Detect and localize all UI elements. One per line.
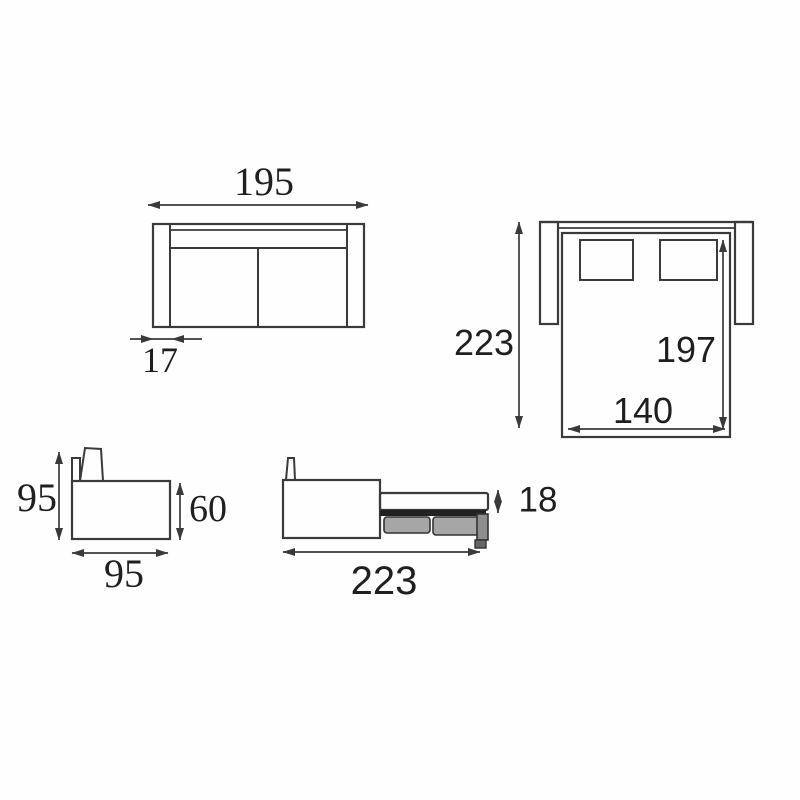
bed-side-leg-foot	[475, 540, 486, 548]
diagram-linework	[0, 0, 800, 800]
label-armrest-width: 17	[142, 342, 178, 378]
label-bed-width: 140	[613, 393, 673, 429]
sofa-bed-dimension-diagram: 195 17 223 197 140 95 60 95 18 223	[0, 0, 800, 800]
label-open-depth: 223	[351, 561, 418, 601]
bed-side-view	[283, 458, 498, 552]
label-mattress-thickness: 18	[519, 483, 558, 518]
label-sofa-overall-height: 95	[17, 478, 57, 518]
bed-side-folded-section-2	[433, 517, 480, 535]
bed-plan-pillow-right	[660, 240, 717, 280]
sofa-side-back-frame	[72, 458, 80, 481]
label-sofa-depth: 95	[104, 554, 144, 594]
label-sofa-overall-width: 195	[234, 162, 294, 202]
bed-side-folded-section-1	[384, 517, 430, 533]
label-armrest-height: 60	[189, 490, 227, 528]
sofa-side-body-outline	[72, 481, 170, 539]
label-bed-length: 197	[656, 332, 716, 368]
bed-side-back-frame	[286, 458, 295, 480]
sofa-side-back-cushion	[80, 448, 103, 481]
sofa-plan-view	[130, 205, 368, 339]
bed-side-body-outline	[283, 480, 380, 538]
bed-side-mattress-platform	[380, 493, 488, 510]
bed-side-frame-rail	[380, 510, 486, 516]
label-bed-overall-depth: 223	[454, 325, 514, 361]
sofa-side-view	[59, 448, 180, 553]
bed-side-support-leg	[477, 514, 488, 540]
bed-plan-right-armrest	[735, 222, 753, 324]
bed-plan-pillow-left	[580, 240, 633, 280]
bed-plan-left-armrest	[540, 222, 558, 324]
